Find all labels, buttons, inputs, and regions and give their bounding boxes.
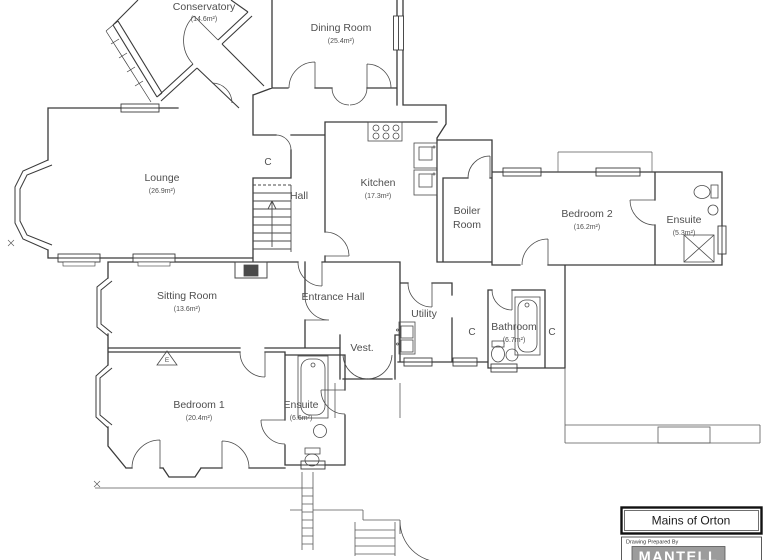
title-block: Mains of Orton Drawing Prepared By MANTE… — [622, 508, 762, 560]
site-name: Mains of Orton — [652, 514, 731, 528]
room-area-dining-room: (25.4m²) — [328, 38, 354, 45]
floor-plan-page: Conservatory (14.6m²) Dining Room (25.4m… — [0, 0, 765, 560]
cupboard-label: C — [548, 327, 555, 338]
hob-icon — [368, 122, 402, 141]
stove-icon — [235, 262, 267, 278]
room-label-hall: Hall — [290, 190, 308, 202]
room-label-bedroom-2: Bedroom 2 — [561, 208, 613, 220]
stairs — [253, 185, 291, 252]
room-label-sitting-room: Sitting Room — [157, 290, 217, 302]
company-logo-text: MANTELL — [639, 550, 719, 560]
basin-icon — [314, 425, 327, 438]
room-label-bedroom-1: Bedroom 1 — [173, 399, 225, 411]
fireplace-label: E — [165, 357, 170, 364]
room-area-conservatory: (14.6m²) — [191, 16, 217, 23]
prepared-by-label: Drawing Prepared By — [626, 540, 679, 546]
room-label-ensuite-2: Ensuite — [666, 214, 701, 226]
room-label-conservatory: Conservatory — [173, 1, 236, 13]
cupboard-label: C — [468, 327, 475, 338]
bay-windows — [15, 160, 112, 428]
room-area-ensuite-1: (6.6m²) — [290, 415, 313, 422]
room-area-bedroom-1: (20.4m²) — [186, 415, 212, 422]
cupboard-label: C — [264, 157, 271, 168]
room-label-ensuite-1: Ensuite — [283, 399, 318, 411]
room-label-entrance-hall: Entrance Hall — [301, 291, 364, 303]
room-label-dining-room: Dining Room — [311, 22, 372, 34]
room-area-bedroom-2: (16.2m²) — [574, 224, 600, 231]
basin-icon — [708, 205, 718, 215]
room-label-boiler-line2: Room — [453, 219, 481, 231]
room-area-kitchen: (17.3m²) — [365, 193, 391, 200]
windows — [58, 16, 726, 469]
oven-icon — [414, 143, 437, 195]
room-label-vestibule: Vest. — [350, 342, 373, 354]
room-area-ensuite-2: (5.3m²) — [673, 230, 696, 237]
doors — [132, 16, 655, 560]
room-area-sitting-room: (13.6m²) — [174, 306, 200, 313]
room-area-bathroom: (6.7m²) — [503, 337, 526, 344]
utility-sink-icon — [397, 322, 416, 354]
toilet-icon — [694, 185, 718, 199]
room-label-bathroom: Bathroom — [491, 321, 537, 333]
toilet-icon — [492, 341, 505, 362]
room-label-utility: Utility — [411, 308, 437, 320]
room-label-kitchen: Kitchen — [360, 177, 395, 189]
room-label-boiler-line1: Boiler — [454, 205, 481, 217]
external-works — [8, 152, 760, 556]
shower-icon — [684, 235, 714, 262]
conservatory-walls — [106, 0, 264, 108]
room-area-lounge: (26.9m²) — [149, 188, 175, 195]
floor-plan-drawing: Conservatory (14.6m²) Dining Room (25.4m… — [0, 0, 765, 560]
room-label-lounge: Lounge — [144, 172, 179, 184]
